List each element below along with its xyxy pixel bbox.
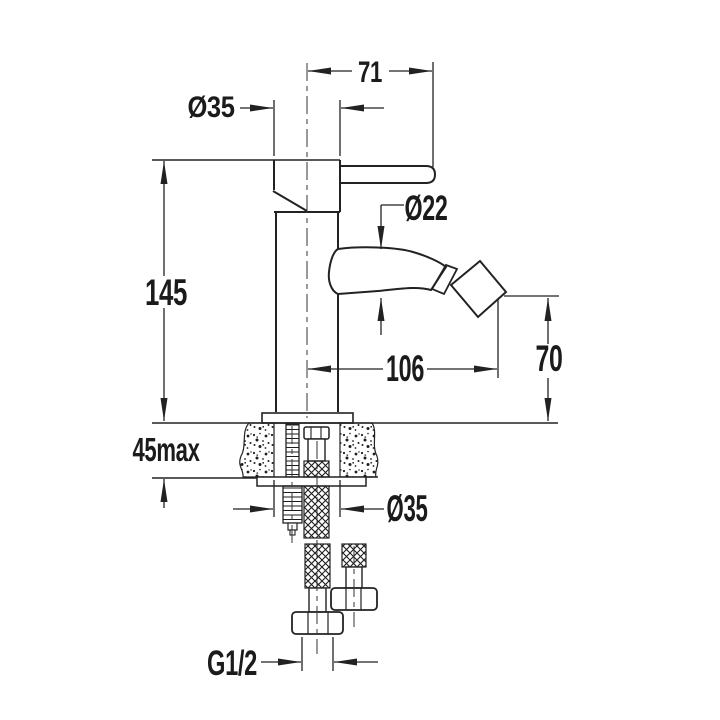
- countertop-section-left: [240, 423, 274, 477]
- faucet-outline: [152, 160, 506, 423]
- label-lever-reach: 71: [358, 56, 382, 89]
- handle-lever: [340, 166, 435, 183]
- countertop-section-right: [340, 423, 378, 477]
- label-body-diameter: Ø35: [188, 91, 235, 124]
- mounting-section: [152, 423, 558, 634]
- aerator-neck: [432, 265, 457, 294]
- dim-body-diameter: [240, 100, 384, 156]
- spout: [329, 247, 446, 294]
- hose-hex-fitting: [304, 427, 329, 439]
- dim-spout-diameter: [381, 205, 404, 335]
- dim-g12: [261, 637, 378, 671]
- label-body-height: 145: [145, 272, 187, 313]
- label-hole-diameter: Ø35: [387, 488, 428, 529]
- technical-drawing-page: 71 Ø35 Ø22 145 106 70 45max Ø35 G1/2: [0, 0, 720, 720]
- base-flange: [262, 413, 353, 423]
- label-spout-reach: 106: [386, 348, 424, 389]
- label-thread: G1/2: [207, 644, 257, 683]
- label-spout-diameter: Ø22: [405, 189, 448, 228]
- label-outlet-height: 70: [536, 338, 563, 379]
- bidet-mixer-dimension-drawing: 71 Ø35 Ø22 145 106 70 45max Ø35 G1/2: [0, 0, 720, 720]
- label-deck-max: 45max: [133, 431, 201, 468]
